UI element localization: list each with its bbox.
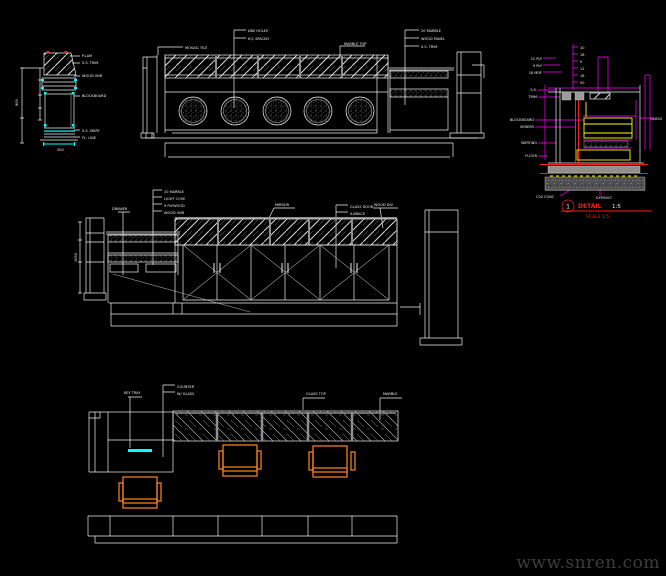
annotation-label: 20 MARBLE [164, 190, 184, 194]
annotation-label: BLOCKBOARD [510, 118, 535, 122]
annotation-label: 900 [15, 99, 19, 106]
back-elevation-view [78, 190, 462, 345]
annotation-label: 12 PLY [531, 57, 543, 61]
annotation-label: MARBLE [383, 392, 397, 396]
annotation-label: EXP.BOLT [596, 196, 613, 200]
annotation-label: 18 MDF [529, 71, 542, 75]
annotation-label: X-BRACE [350, 212, 365, 216]
cad-drawing: 1 DETAIL 1:5 SCALE 1:5 [0, 0, 666, 576]
annotation-label: WOOD DIV. [374, 203, 394, 207]
annotation-label: 12 [580, 67, 584, 71]
annotation-label: MIRROR [275, 203, 290, 207]
detail-title: 1 DETAIL 1:5 SCALE 1:5 [561, 200, 652, 220]
annotation-label: C20 CONC [536, 195, 555, 199]
annotation-label: 9 PLY [533, 64, 543, 68]
watermark: www.snren.com [516, 553, 660, 573]
annotation-label: S.S. SKIRT [82, 129, 101, 133]
annotation-label: DRAWER [112, 207, 128, 211]
annotation-label: P.LAM [82, 54, 92, 58]
annotation-label: GLASS [650, 117, 662, 121]
annotation-label: S.S. TRIM [82, 61, 98, 65]
stool [219, 445, 261, 476]
annotation-label: 18 [580, 74, 584, 78]
annotation-label: BLOCKBOARD [82, 94, 107, 98]
annotation-label: WOOD VNR [164, 211, 185, 215]
annotation-label: KEY TRAY [124, 391, 141, 395]
annotation-label: LIGHT COVE [164, 197, 185, 201]
annotation-label: EQ. SPACED [248, 37, 269, 41]
annotation-label: W/ GLASS [177, 392, 195, 396]
annotation-label: GLASS DOOR [350, 205, 374, 209]
annotation-label: S.S. [530, 88, 537, 92]
side-section-cyan-marks [41, 79, 77, 146]
detail-scale: 1:5 [612, 204, 621, 210]
stool [309, 446, 355, 477]
annotation-label: COUNTER [177, 385, 195, 389]
annotation-label: WOOD VNR [82, 74, 103, 78]
annotation-label: 9 PLYWOOD [164, 204, 185, 208]
annotation-label: 1050 [74, 253, 78, 262]
stool [119, 477, 161, 508]
detail-section-view: 1 DETAIL 1:5 SCALE 1:5 [535, 44, 656, 220]
annotation-label: FLOOR [525, 154, 537, 158]
annotation-label: VENEER [520, 125, 535, 129]
annotation-label: 9 [580, 60, 582, 64]
annotation-label: MARBLE TOP [344, 42, 367, 46]
annotation-label: 20 MARBLE [421, 29, 441, 33]
annotation-label: Ø80 HOLES [248, 28, 269, 33]
annotation-label: 10 [580, 46, 584, 50]
annotation-label: TRIM [527, 95, 537, 99]
annotation-label: SKIRTING [521, 141, 538, 145]
plan-stools [119, 445, 355, 508]
annotation-label: FL. LINE [82, 136, 96, 140]
side-section-view [20, 53, 80, 143]
annotation-label: MOSAIC TILE [185, 46, 207, 50]
detail-label: DETAIL [578, 203, 602, 210]
annotation-label: 50 [580, 81, 584, 85]
annotation-label: 18 [580, 53, 584, 57]
annotation-label: WOOD PANEL [421, 37, 445, 41]
plan-keyboard-tray [128, 449, 152, 452]
detail-subtitle: SCALE 1:5 [586, 214, 609, 220]
annotation-label: S.S. TRIM [421, 45, 437, 49]
detail-number: 1 [566, 204, 570, 211]
annotation-label: GLASS TOP [306, 392, 326, 396]
cad-drawing-canvas: 1 DETAIL 1:5 SCALE 1:5 [0, 0, 666, 576]
annotation-label: 500 [57, 148, 64, 152]
